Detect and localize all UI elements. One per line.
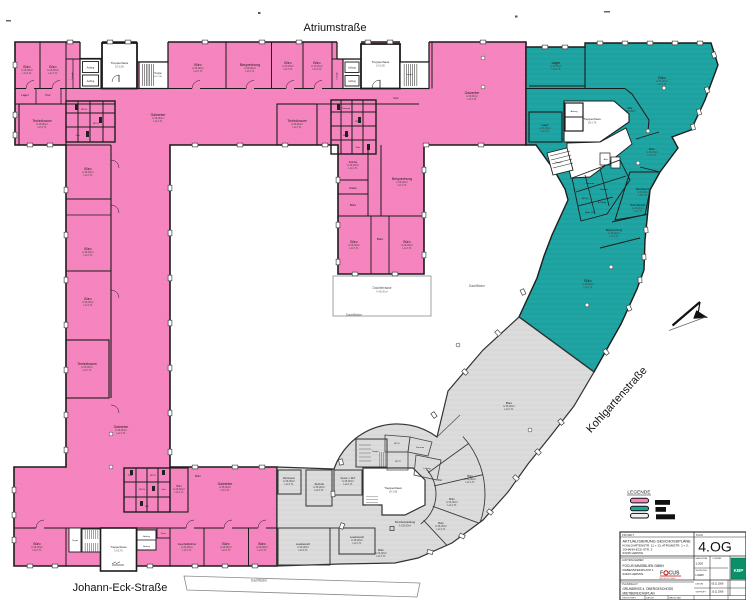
- svg-text:GEPRÜFT: GEPRÜFT: [696, 591, 707, 594]
- svg-text:LH 2,71: LH 2,71: [343, 482, 353, 486]
- svg-text:Aufzug: Aufzug: [348, 80, 356, 83]
- svg-text:Aufzug: Aufzug: [571, 110, 579, 113]
- svg-text:LH 2,71: LH 2,71: [283, 67, 293, 71]
- svg-text:LH 2,71: LH 2,71: [348, 166, 358, 170]
- svg-text:PLANINHALT: PLANINHALT: [622, 582, 638, 586]
- svg-text:LH 2,71: LH 2,71: [298, 548, 308, 552]
- svg-text:LH 3,05: LH 3,05: [376, 64, 385, 67]
- svg-text:LH 2,71: LH 2,71: [583, 285, 593, 289]
- svg-text:Techn.: Techn.: [161, 533, 167, 535]
- svg-text:WC K: WC K: [394, 443, 400, 445]
- svg-text:Vorraum: Vorraum: [586, 182, 594, 185]
- svg-text:LH 2,71: LH 2,71: [647, 153, 657, 157]
- svg-text:Treppenhaus: Treppenhaus: [110, 545, 127, 549]
- svg-text:4.OG: 4.OG: [698, 539, 731, 555]
- svg-text:Vorr.: Vorr.: [162, 488, 167, 491]
- svg-text:Dachfläche: Dachfläche: [469, 284, 485, 288]
- svg-text:Aufzug: Aufzug: [143, 545, 150, 548]
- svg-text:PLAN: PLAN: [696, 533, 703, 537]
- svg-text:Flur: Flur: [393, 96, 398, 100]
- svg-text:Flur: Flur: [438, 479, 442, 482]
- svg-text:GEZEICHNET: GEZEICHNET: [622, 598, 637, 600]
- svg-text:F: F: [660, 571, 663, 577]
- svg-text:LH 2,71: LH 2,71: [467, 97, 477, 101]
- svg-text:WC H: WC H: [582, 198, 588, 200]
- svg-text:Putz: Putz: [356, 146, 360, 149]
- svg-text:WC D: WC D: [343, 135, 349, 137]
- svg-text:Intensiv: Intensiv: [600, 188, 608, 191]
- svg-text:GRUNDRISS 4. OBERGESCHOSS: GRUNDRISS 4. OBERGESCHOSS: [623, 587, 674, 591]
- svg-text:Treppe: Treppe: [372, 450, 380, 453]
- svg-text:Aufz.: Aufz.: [604, 158, 609, 161]
- svg-text:LH 2,71: LH 2,71: [352, 541, 362, 545]
- svg-text:Technik: Technik: [337, 71, 339, 79]
- svg-text:Büro: Büro: [195, 474, 201, 478]
- svg-text:Treppenhaus: Treppenhaus: [372, 60, 390, 64]
- svg-text:KBP: KBP: [734, 568, 744, 573]
- svg-text:LAWRI: LAWRI: [696, 573, 704, 577]
- svg-text:LH 2,71: LH 2,71: [397, 183, 407, 187]
- svg-text:Treppenhaus: Treppenhaus: [583, 117, 601, 121]
- svg-text:Aufzug: Aufzug: [87, 80, 95, 83]
- svg-text:Vorraum: Vorraum: [342, 107, 350, 110]
- svg-text:LH 2,71: LH 2,71: [83, 173, 93, 177]
- svg-text:WC D: WC D: [93, 123, 99, 125]
- svg-text:Lager: Lager: [21, 93, 29, 97]
- svg-text:LH 2,71: LH 2,71: [609, 234, 619, 238]
- svg-text:Treppe: Treppe: [72, 540, 79, 542]
- svg-text:Aufzug: Aufzug: [348, 67, 356, 70]
- svg-text:Johann-Eck-Straße: Johann-Eck-Straße: [73, 582, 168, 594]
- svg-text:LH 2,71: LH 2,71: [551, 67, 561, 71]
- svg-text:LH 2,71: LH 2,71: [48, 71, 58, 75]
- svg-text:LH 2,71: LH 2,71: [37, 125, 47, 129]
- svg-text:A 155,00m²: A 155,00m²: [399, 524, 411, 527]
- svg-text:LH 2,71: LH 2,71: [245, 69, 255, 73]
- svg-text:Aufzug: Aufzug: [87, 67, 95, 70]
- svg-text:LH 2,71: LH 2,71: [465, 480, 475, 484]
- svg-text:LH 2,71: LH 2,71: [83, 253, 93, 257]
- svg-text:MASSSTAB: MASSSTAB: [669, 597, 681, 600]
- svg-text:Dachfläche: Dachfläche: [251, 579, 267, 583]
- svg-text:Flur/Ausstellung: Flur/Ausstellung: [395, 520, 415, 524]
- svg-text:Treppenhaus: Treppenhaus: [111, 61, 129, 65]
- svg-text:LH 2,71: LH 2,71: [540, 129, 550, 133]
- svg-text:LH 2,71: LH 2,71: [292, 125, 302, 129]
- svg-text:Treppe: Treppe: [406, 73, 414, 76]
- svg-text:LH 2,76: LH 2,76: [114, 550, 123, 552]
- svg-text:LH 2,71: LH 2,71: [504, 407, 514, 411]
- svg-text:LH 2,71: LH 2,71: [82, 368, 92, 372]
- svg-text:LH 2,71: LH 2,71: [657, 82, 667, 86]
- svg-text:Dachterrasse: Dachterrasse: [373, 286, 392, 290]
- svg-text:PROJEKT: PROJEKT: [622, 533, 634, 537]
- svg-text:Bath. WC: Bath. WC: [585, 211, 595, 214]
- svg-text:Büro: Büro: [350, 203, 357, 207]
- svg-text:LH 2,71: LH 2,71: [32, 548, 42, 552]
- svg-text:WC: WC: [145, 506, 149, 508]
- svg-text:LH 2,71: LH 2,71: [116, 431, 126, 435]
- svg-text:Treppenhaus: Treppenhaus: [384, 486, 402, 490]
- svg-text:Vorr.: Vorr.: [76, 134, 81, 137]
- svg-text:WC D: WC D: [395, 461, 401, 463]
- svg-text:LH 2,71: LH 2,71: [349, 246, 359, 250]
- svg-text:LH 2,71: LH 2,71: [447, 503, 457, 507]
- svg-text:AUFTRAGGEBER: AUFTRAGGEBER: [622, 558, 644, 562]
- svg-text:DATUM: DATUM: [646, 597, 654, 600]
- svg-text:05.11.2008: 05.11.2008: [712, 583, 724, 586]
- svg-text:DATUM: DATUM: [696, 583, 704, 586]
- svg-text:MIETBEREICHSPLAN: MIETBEREICHSPLAN: [623, 592, 656, 596]
- svg-text:LH 2,71: LH 2,71: [257, 548, 267, 552]
- svg-text:LH 2,71: LH 2,71: [22, 71, 32, 75]
- svg-text:Vorraum: Vorraum: [416, 446, 424, 449]
- svg-text:Flur: Flur: [45, 93, 50, 97]
- svg-text:LH 2,71: LH 2,71: [638, 193, 648, 197]
- svg-text:Putz: Putz: [128, 474, 132, 477]
- svg-text:LH 2,71: LH 2,71: [193, 69, 203, 73]
- svg-text:LH 2,71: LH 2,71: [221, 548, 231, 552]
- svg-text:CUS: CUS: [669, 571, 680, 577]
- svg-text:LH 2,71: LH 2,71: [312, 67, 322, 71]
- svg-text:10.11.2008: 10.11.2008: [712, 591, 724, 594]
- svg-text:WC H: WC H: [139, 489, 145, 491]
- svg-text:Treppe: Treppe: [154, 72, 162, 75]
- svg-text:LH 2,71: LH 2,71: [314, 488, 324, 492]
- svg-text:WC D: WC D: [150, 475, 156, 477]
- svg-text:LH 2,71: LH 2,71: [220, 488, 230, 492]
- svg-text:Dachfläche: Dachfläche: [346, 313, 362, 317]
- svg-text:LEGENDE: LEGENDE: [627, 490, 650, 495]
- svg-text:WC H: WC H: [355, 121, 361, 123]
- svg-text:LH 2,71: LH 2,71: [83, 303, 93, 307]
- svg-text:04103 LEIPZIG: 04103 LEIPZIG: [623, 572, 644, 576]
- svg-text:1:200: 1:200: [696, 562, 704, 566]
- svg-text:GEZEICHN.: GEZEICHN.: [696, 570, 708, 572]
- svg-text:LH 2,46: LH 2,46: [154, 76, 162, 78]
- svg-text:LH 2,71: LH 2,71: [633, 209, 643, 213]
- svg-text:A 98,00m²: A 98,00m²: [376, 290, 388, 294]
- svg-text:LH 2,71: LH 2,71: [436, 527, 446, 531]
- svg-text:04315 LEIPZIG: 04315 LEIPZIG: [623, 551, 644, 555]
- svg-text:Küche: Küche: [349, 186, 357, 190]
- svg-text:Aufzug: Aufzug: [143, 535, 150, 538]
- svg-text:MASSSTAB: MASSSTAB: [696, 557, 708, 560]
- svg-text:Büro: Büro: [377, 237, 384, 241]
- svg-text:LH 2,71: LH 2,71: [182, 548, 192, 552]
- svg-text:LH 2,71: LH 2,71: [174, 490, 184, 494]
- svg-text:LH 2,96: LH 2,96: [389, 490, 398, 493]
- svg-text:LH 3,05: LH 3,05: [115, 65, 124, 68]
- svg-text:LH 2,71: LH 2,71: [153, 119, 163, 123]
- svg-text:LH 2,71: LH 2,71: [284, 482, 294, 486]
- svg-text:IMMOBILIEN GMBH: IMMOBILIEN GMBH: [659, 578, 676, 580]
- svg-text:LH 2,76: LH 2,76: [588, 121, 597, 124]
- svg-text:Technik: Technik: [72, 71, 74, 79]
- svg-text:LH 2,71: LH 2,71: [402, 246, 412, 250]
- svg-text:LH 2,71: LH 2,71: [376, 554, 386, 558]
- svg-text:WC H: WC H: [81, 109, 87, 111]
- svg-text:A.3-Bad: A.3-Bad: [598, 201, 607, 204]
- svg-text:FORMAT: FORMAT: [713, 557, 723, 560]
- svg-text:Treppe: Treppe: [555, 161, 563, 164]
- svg-text:Atriumstraße: Atriumstraße: [304, 22, 367, 34]
